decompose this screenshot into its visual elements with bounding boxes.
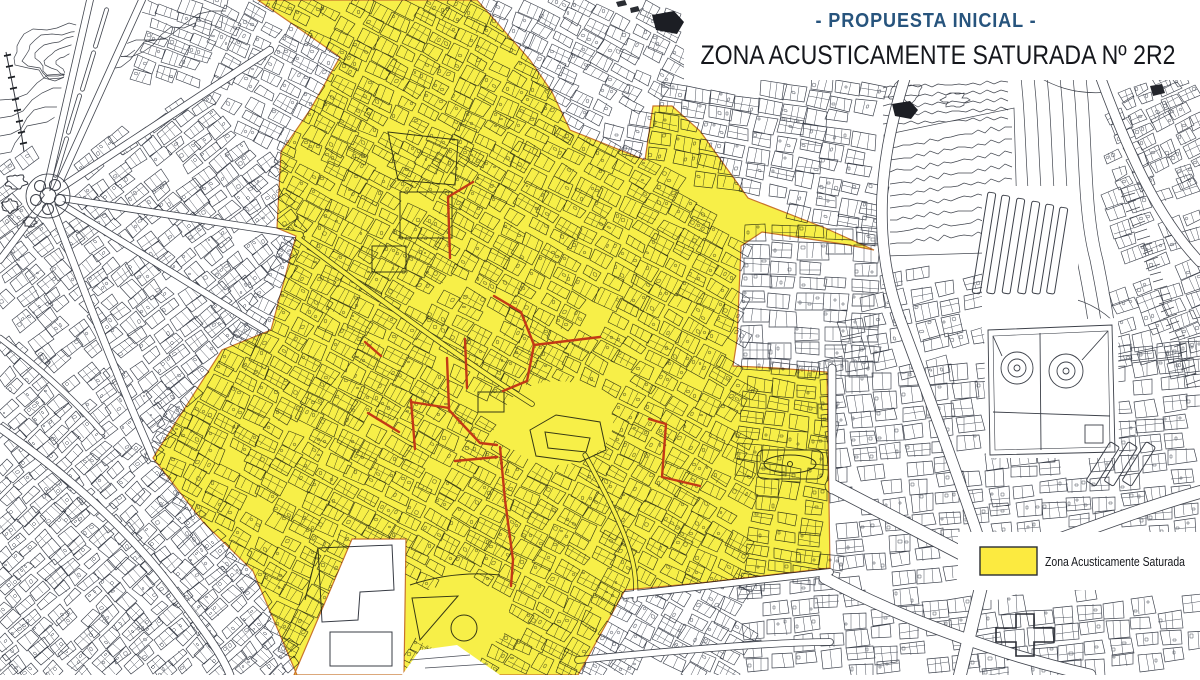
svg-text:Zona Acusticamente Saturada: Zona Acusticamente Saturada bbox=[1045, 554, 1186, 569]
svg-text:ZONA ACUSTICAMENTE SATURADA Nº: ZONA ACUSTICAMENTE SATURADA Nº 2R2 bbox=[701, 40, 1176, 70]
svg-text:- PROPUESTA INICIAL -: - PROPUESTA INICIAL - bbox=[816, 9, 1037, 32]
